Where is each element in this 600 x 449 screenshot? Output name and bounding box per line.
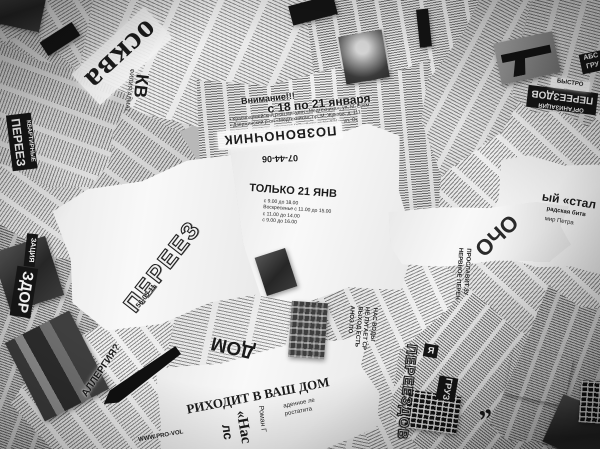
ls-letters: лс bbox=[218, 423, 236, 440]
nas-vody-lines: НАС ВОДЫНЕ ПУГАЕТ СРВЫХОД ЕСТЬАНОЗ ПО bbox=[344, 305, 378, 351]
gruz-box: ГРУЗ bbox=[435, 375, 458, 402]
abs-gru-box: АБСГРУ bbox=[579, 50, 600, 74]
abs-gru-box-line-1: ГРУ bbox=[585, 60, 600, 72]
building-photo bbox=[288, 301, 328, 359]
portrait-photo bbox=[338, 30, 390, 85]
phone-number-1: 07-44-06 bbox=[262, 152, 298, 165]
newspaper-collage-photo: оскваКВФИЛИЯ АЛМАТКВАРТИРНЫЕПЕРЕЕЗВниман… bbox=[0, 0, 600, 449]
schedule-lines: с 9.00 до 18.00Воскресенье с 11.00 до 15… bbox=[262, 198, 332, 228]
phone-table-box-right bbox=[579, 380, 600, 424]
ya-box: Я bbox=[423, 343, 440, 359]
